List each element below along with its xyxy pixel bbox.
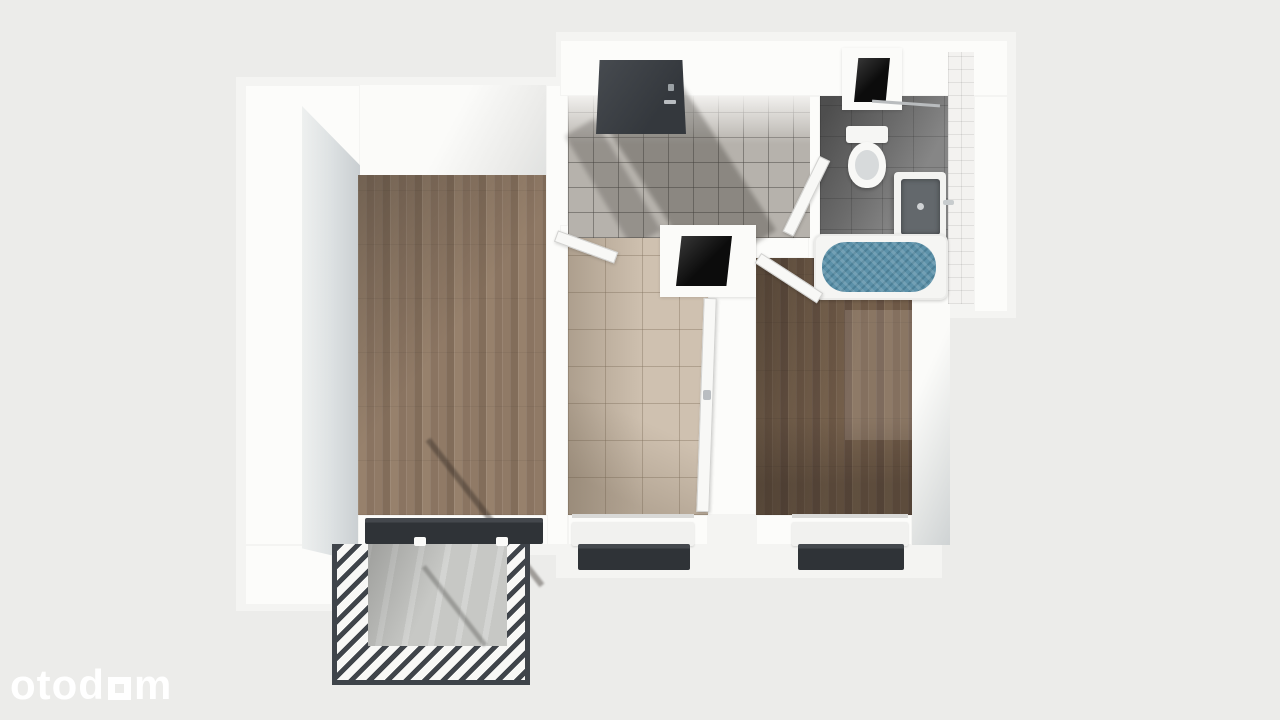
wall-top-left	[360, 85, 560, 178]
radiator-kitchen	[578, 544, 690, 570]
entry-door	[596, 60, 686, 134]
wall-left-stub	[245, 545, 332, 605]
balcony-door-pivot	[414, 537, 426, 546]
living-room-shadow	[358, 175, 546, 515]
wall-right-outer	[974, 96, 1008, 312]
kitchen-door-handle	[703, 390, 711, 400]
radiator-bedroom	[798, 544, 904, 570]
ventilation-shaft-bathroom-opening	[854, 58, 890, 102]
washbasin-faucet	[943, 200, 954, 205]
washbasin-drain	[917, 203, 924, 210]
bedroom-window-sill	[792, 522, 908, 546]
entry-door-handle	[664, 100, 676, 104]
wall-living-kitchen	[546, 85, 568, 545]
entry-door-lock	[668, 84, 674, 91]
bedroom-window-frame	[792, 514, 908, 518]
square-o-icon	[108, 677, 131, 700]
toilet-bowl-inner	[855, 150, 879, 180]
kitchen-window-sill	[572, 522, 694, 546]
bathtub-water	[822, 242, 936, 292]
otodom-watermark: otod m	[10, 664, 172, 706]
floorplan-scene: otod m	[0, 0, 1280, 720]
kitchen-window-frame	[572, 514, 694, 518]
ventilation-shaft-hall-opening	[676, 236, 732, 286]
bathroom-wall-tiles	[948, 52, 974, 304]
balcony-door-pivot-2	[496, 537, 508, 546]
toilet-tank	[846, 126, 888, 143]
otodom-watermark-suffix: m	[134, 664, 172, 706]
wall-left-inner-face	[302, 106, 360, 562]
balcony-shadow	[368, 536, 507, 646]
radiator-living-room	[365, 518, 543, 544]
otodom-watermark-prefix: otod	[10, 664, 105, 706]
